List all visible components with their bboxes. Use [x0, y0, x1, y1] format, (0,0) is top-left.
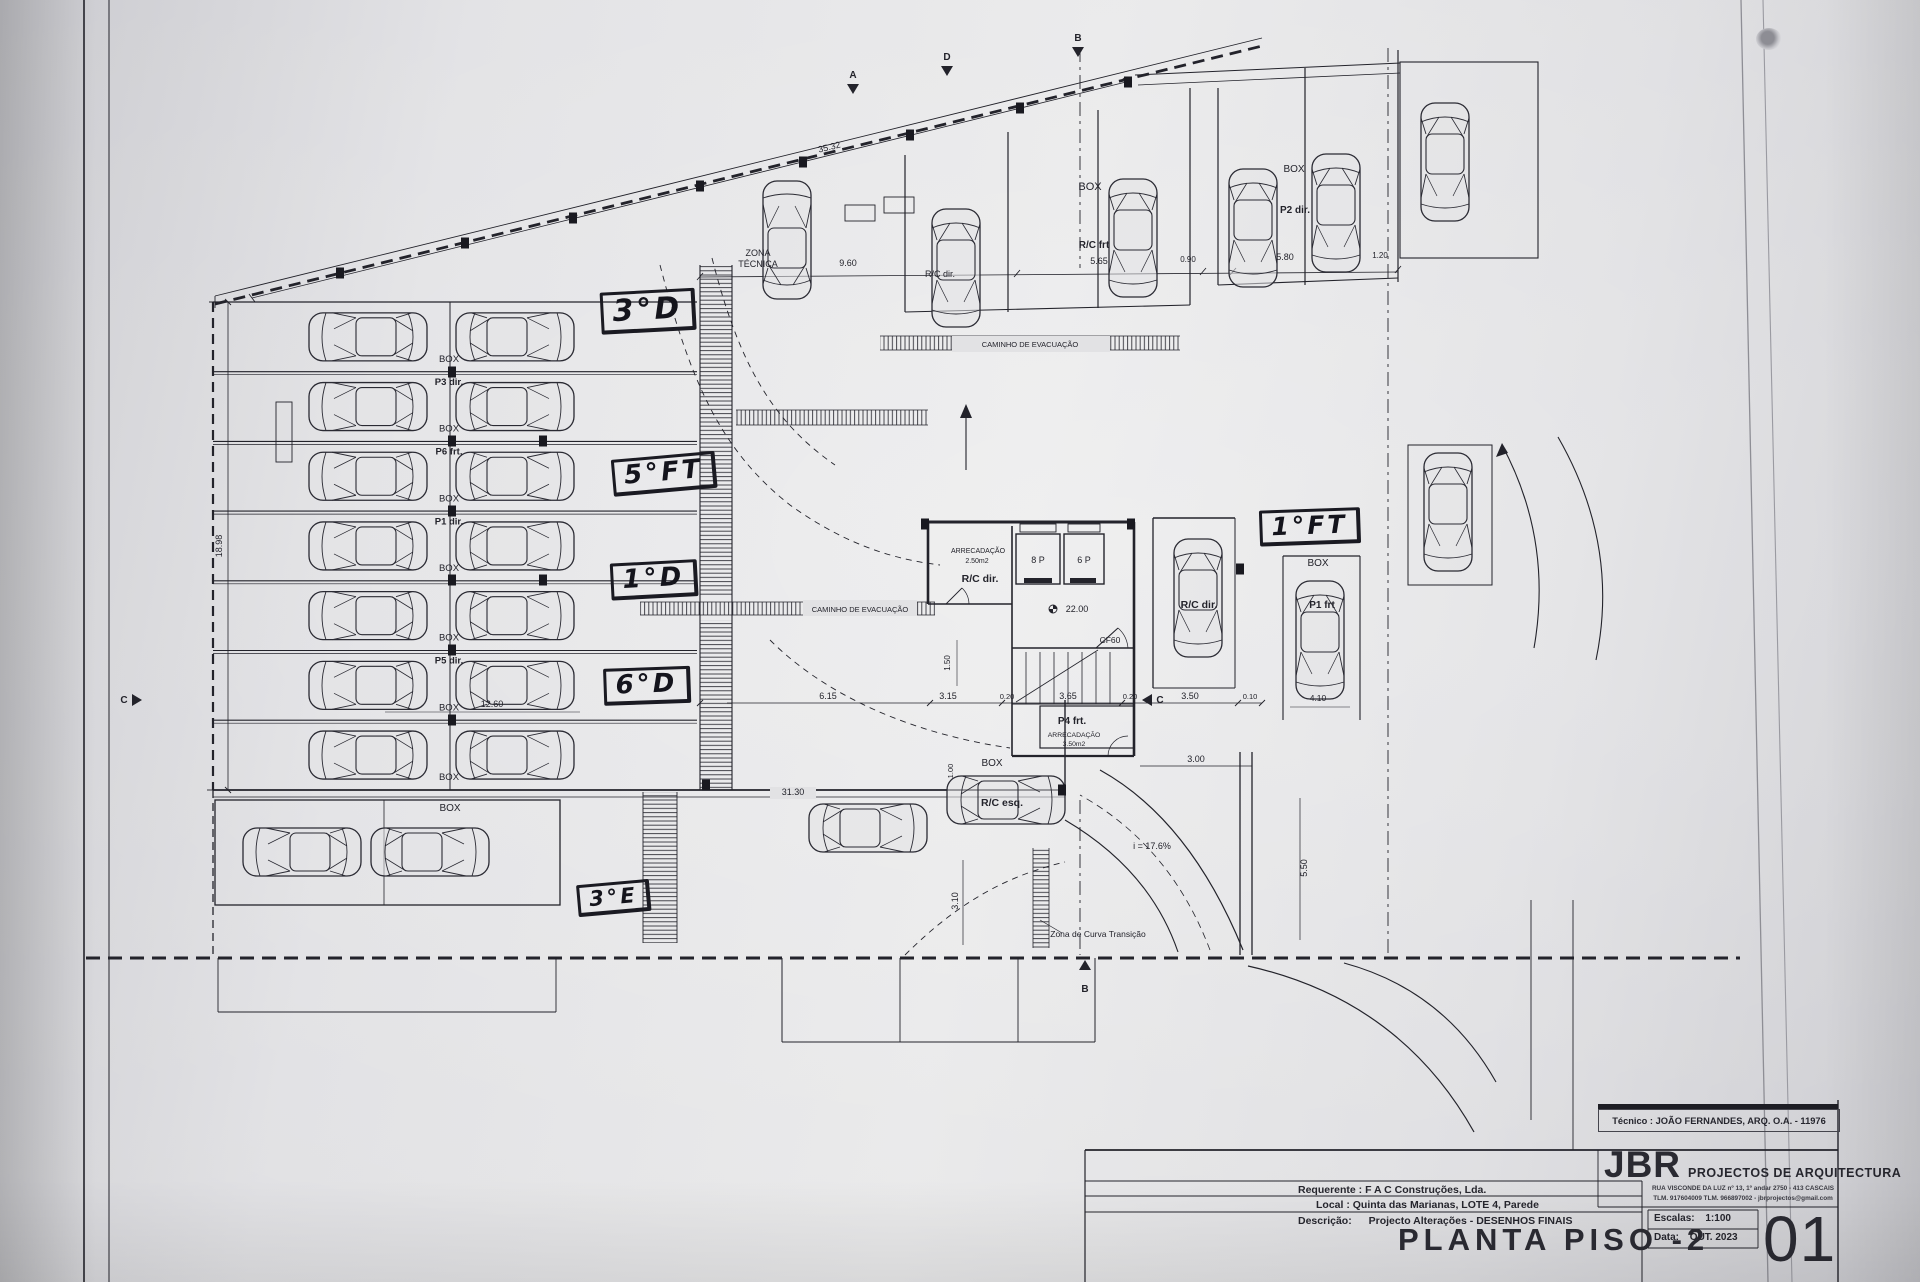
parked-car [1296, 581, 1344, 699]
plan-label: 3.10 [950, 892, 960, 910]
stall-box-label: BOX [439, 702, 460, 713]
parked-car [456, 661, 574, 709]
data-row: Data: OUT. 2023 [1654, 1232, 1738, 1243]
plan-label: 18.98 [214, 535, 224, 558]
plan-label: 0.20 [1123, 692, 1138, 701]
stall-box-label: BOX [439, 563, 460, 574]
parked-car [456, 731, 574, 779]
plan-line [1741, 0, 1768, 1282]
section-letter: B [1081, 984, 1088, 995]
tecnico-text: Técnico : JOÃO FERNANDES, ARQ. O.A. - 11… [1612, 1116, 1826, 1126]
plan-label: 6 P [1077, 555, 1091, 565]
plan-label: R/C dir. [925, 269, 955, 279]
plan-label: ARRECADAÇÃO [951, 546, 1006, 555]
plan-curve [209, 296, 221, 308]
parked-car [309, 313, 427, 361]
plan-label: 5.65 [1090, 256, 1108, 266]
plan-label: ZONA [745, 248, 770, 258]
floor-plan-drawing: BOXP3 dir.BOXP6 frt.BOXP1 dir.BOXBOXP5 d… [0, 0, 1920, 1282]
plan-label: 1.00 [946, 764, 955, 779]
section-triangle-icon [941, 66, 953, 76]
parked-car [309, 731, 427, 779]
section-letter: C [1156, 695, 1163, 706]
parked-car [456, 383, 574, 431]
plan-line [1135, 63, 1400, 75]
data-label: Data: [1654, 1232, 1679, 1243]
section-marker-c: C [120, 694, 142, 706]
firm-logo: JBR [1604, 1144, 1681, 1185]
plan-line [1016, 650, 1098, 702]
plan-label: 2.50m2 [965, 558, 988, 565]
column-pillar [1127, 519, 1135, 530]
local-label: Local : [1316, 1199, 1350, 1211]
column-pillar [448, 715, 456, 726]
plan-label: Zona de Curva Transição [1050, 929, 1146, 939]
parked-car [371, 828, 489, 876]
column-pillar [702, 780, 710, 791]
plan-label: 6.15 [819, 691, 837, 701]
requerente-label: Requerente : [1298, 1184, 1362, 1196]
escala-label: Escalas: [1654, 1213, 1695, 1224]
column-pillar [696, 181, 704, 192]
column-pillar [448, 367, 456, 378]
parked-car [1109, 179, 1157, 297]
column-pillar [336, 268, 344, 279]
section-marker-d: D [941, 52, 953, 76]
section-letter: D [943, 52, 950, 63]
plan-label: ARRECADAÇÃO [1048, 730, 1101, 739]
column-pillar [448, 575, 456, 586]
plan-curve [1502, 445, 1539, 648]
plan-label: 3.15 [939, 691, 957, 701]
plan-outline [1040, 706, 1134, 748]
handwritten-unit-label: 3°E [576, 879, 652, 917]
handwritten-unit-label: 1°D [610, 559, 699, 601]
sheet-number: 01 [1763, 1202, 1836, 1276]
parked-car [243, 828, 361, 876]
section-marker-b: B [1079, 960, 1091, 995]
firm-logo-row: JBRPROJECTOS DE ARQUITECTURA [1604, 1144, 1901, 1186]
plan-label: 0.10 [1243, 692, 1258, 701]
plan-label: 22.00 [1066, 604, 1089, 614]
plan-label: TÉCNICA [738, 259, 778, 269]
direction-arrowhead [960, 404, 972, 418]
wall-hatch [700, 620, 732, 790]
plan-label: 9.60 [839, 258, 857, 268]
plan-label: CF60 [1100, 635, 1121, 645]
column-pillar [461, 238, 469, 249]
escala-row: Escalas: 1:100 [1654, 1213, 1731, 1224]
column-pillar [906, 130, 914, 141]
plan-label: 3.50 [1181, 691, 1199, 701]
plan-label: R/C dir. [962, 573, 999, 585]
plan-label: 5.50 [1299, 859, 1309, 877]
plan-label: P4 frt. [1058, 716, 1087, 727]
plan-outline [1020, 524, 1056, 532]
column-pillar [921, 519, 929, 530]
plan-label: R/C dir. [1181, 599, 1218, 611]
parked-car [309, 661, 427, 709]
plan-label: R/C esq. [981, 797, 1023, 809]
plan-label: BOX [1283, 164, 1304, 175]
section-letter: A [849, 70, 856, 81]
plan-outline [845, 205, 875, 221]
plan-label: BOX [981, 758, 1002, 769]
column-pillar [1016, 103, 1024, 114]
plan-line [1138, 73, 1400, 85]
direction-arrowhead [1496, 443, 1508, 457]
wall-hatch [1033, 848, 1049, 948]
plan-line [1763, 0, 1792, 1282]
parked-car [1421, 103, 1469, 221]
section-marker-b: B [1072, 33, 1084, 57]
plan-outline [884, 197, 914, 213]
plan-label: 3.00 [1187, 754, 1205, 764]
hole-punch-mark [1756, 28, 1782, 50]
stall-box-label: BOX [439, 493, 460, 504]
column-pillar [1236, 564, 1244, 575]
plan-label: 1.20 [1372, 251, 1388, 260]
wall-hatch [736, 410, 928, 425]
local-row: Local : Quinta das Marianas, LOTE 4, Par… [1316, 1199, 1539, 1211]
plan-label: BOX [1307, 558, 1328, 569]
plan-label: BOX [439, 803, 460, 814]
column-pillar [799, 157, 807, 168]
wall-hatch [700, 265, 732, 596]
stall-number-label: P3 dir. [435, 377, 464, 388]
parked-car [309, 592, 427, 640]
parked-car [932, 209, 980, 327]
section-triangle-icon [132, 694, 142, 706]
plan-outline [276, 402, 292, 462]
plan-label: i = 17.6% [1133, 841, 1171, 851]
plan-line [946, 588, 962, 604]
section-triangle-icon [1072, 47, 1084, 57]
section-letter: B [1074, 33, 1081, 44]
column-pillar [448, 436, 456, 447]
plan-label: R/C frt [1079, 240, 1110, 251]
parked-car [309, 383, 427, 431]
plan-curve [770, 640, 1010, 748]
handwritten-unit-label: 3°D [600, 288, 697, 334]
parked-car [1174, 539, 1222, 657]
wall-hatch [643, 792, 677, 943]
plan-curve [1108, 736, 1128, 756]
stall-number-label: P6 frt. [436, 447, 463, 458]
plan-label: P2 dir. [1280, 205, 1310, 216]
stall-number-label: P5 dir. [435, 656, 464, 667]
data-value: OUT. 2023 [1690, 1232, 1738, 1243]
plan-label: 3.65 [1059, 691, 1077, 701]
stall-box-label: BOX [439, 354, 460, 365]
plan-label: CAMINHO DE EVACUAÇÃO [812, 605, 909, 614]
handwritten-unit-label: 1°FT [1259, 507, 1361, 547]
plan-label: P1 frt [1309, 600, 1335, 611]
plan-label: 8 P [1031, 555, 1045, 565]
tecnico-row: Técnico : JOÃO FERNANDES, ARQ. O.A. - 11… [1598, 1109, 1840, 1132]
column-pillar [448, 645, 456, 656]
parked-car [456, 452, 574, 500]
column-pillar [1058, 785, 1066, 796]
plan-label: 0.20 [1000, 692, 1015, 701]
parked-car [1424, 453, 1472, 571]
section-triangle-icon [1142, 694, 1152, 706]
column-pillar [448, 506, 456, 517]
section-triangle-icon [1079, 960, 1091, 970]
descricao-label: Descrição: [1298, 1215, 1352, 1227]
section-letter: C [120, 695, 127, 706]
section-marker-a: A [847, 70, 859, 94]
plan-curve [1248, 966, 1474, 1132]
plan-curve [1344, 963, 1496, 1082]
section-triangle-icon [847, 84, 859, 94]
plan-label: BOX [1078, 181, 1102, 193]
parked-car [456, 522, 574, 570]
plan-line [252, 82, 1126, 298]
parked-car [456, 592, 574, 640]
plan-label: 0.90 [1180, 255, 1196, 264]
escala-value: 1:100 [1705, 1213, 1731, 1224]
parked-car [309, 452, 427, 500]
handwritten-unit-label: 6°D [603, 666, 691, 706]
stall-number-label: P1 dir. [435, 516, 464, 527]
section-marker-c: C [1142, 694, 1164, 706]
stall-box-label: BOX [439, 424, 460, 435]
plan-label: CAMINHO DE EVACUAÇÃO [982, 340, 1079, 349]
requerente-value: F A C Construções, Lda. [1365, 1184, 1486, 1196]
parked-car [809, 804, 927, 852]
parked-car [1229, 169, 1277, 287]
drawing-sheet: BOXP3 dir.BOXP6 frt.BOXP1 dir.BOXBOXP5 d… [0, 0, 1920, 1282]
plan-label: 12.60 [481, 699, 504, 709]
requerente-row: Requerente : F A C Construções, Lda. [1298, 1184, 1486, 1196]
plan-curve [1558, 437, 1603, 660]
plan-label: 4.10 [1310, 693, 1327, 703]
plan-label: 5.80 [1276, 252, 1294, 262]
parked-car [1312, 154, 1360, 272]
firm-tagline: PROJECTOS DE ARQUITECTURA [1688, 1166, 1901, 1180]
parked-car [456, 313, 574, 361]
column-pillar [569, 213, 577, 224]
stall-box-label: BOX [439, 633, 460, 644]
door-threshold [1024, 578, 1052, 583]
stall-box-label: BOX [439, 772, 460, 783]
door-threshold [1070, 578, 1096, 583]
column-pillar [1124, 77, 1132, 88]
column-pillar [539, 575, 547, 586]
plan-curve [1080, 795, 1210, 950]
parked-car [309, 522, 427, 570]
plan-curve [1100, 770, 1243, 950]
firm-address-line1: RUA VISCONDE DA LUZ nº 13, 1º andar 2750… [1646, 1184, 1840, 1194]
plan-label: 1.50 [943, 655, 952, 671]
plan-outline [1068, 524, 1100, 532]
firm-address: RUA VISCONDE DA LUZ nº 13, 1º andar 2750… [1646, 1184, 1840, 1203]
plan-label: 3.50m2 [1063, 741, 1086, 748]
plan-curve [962, 588, 969, 604]
parked-car [763, 181, 811, 299]
column-pillar [539, 436, 547, 447]
plan-label: 31.30 [782, 787, 805, 797]
local-value: Quinta das Marianas, LOTE 4, Parede [1353, 1199, 1539, 1211]
